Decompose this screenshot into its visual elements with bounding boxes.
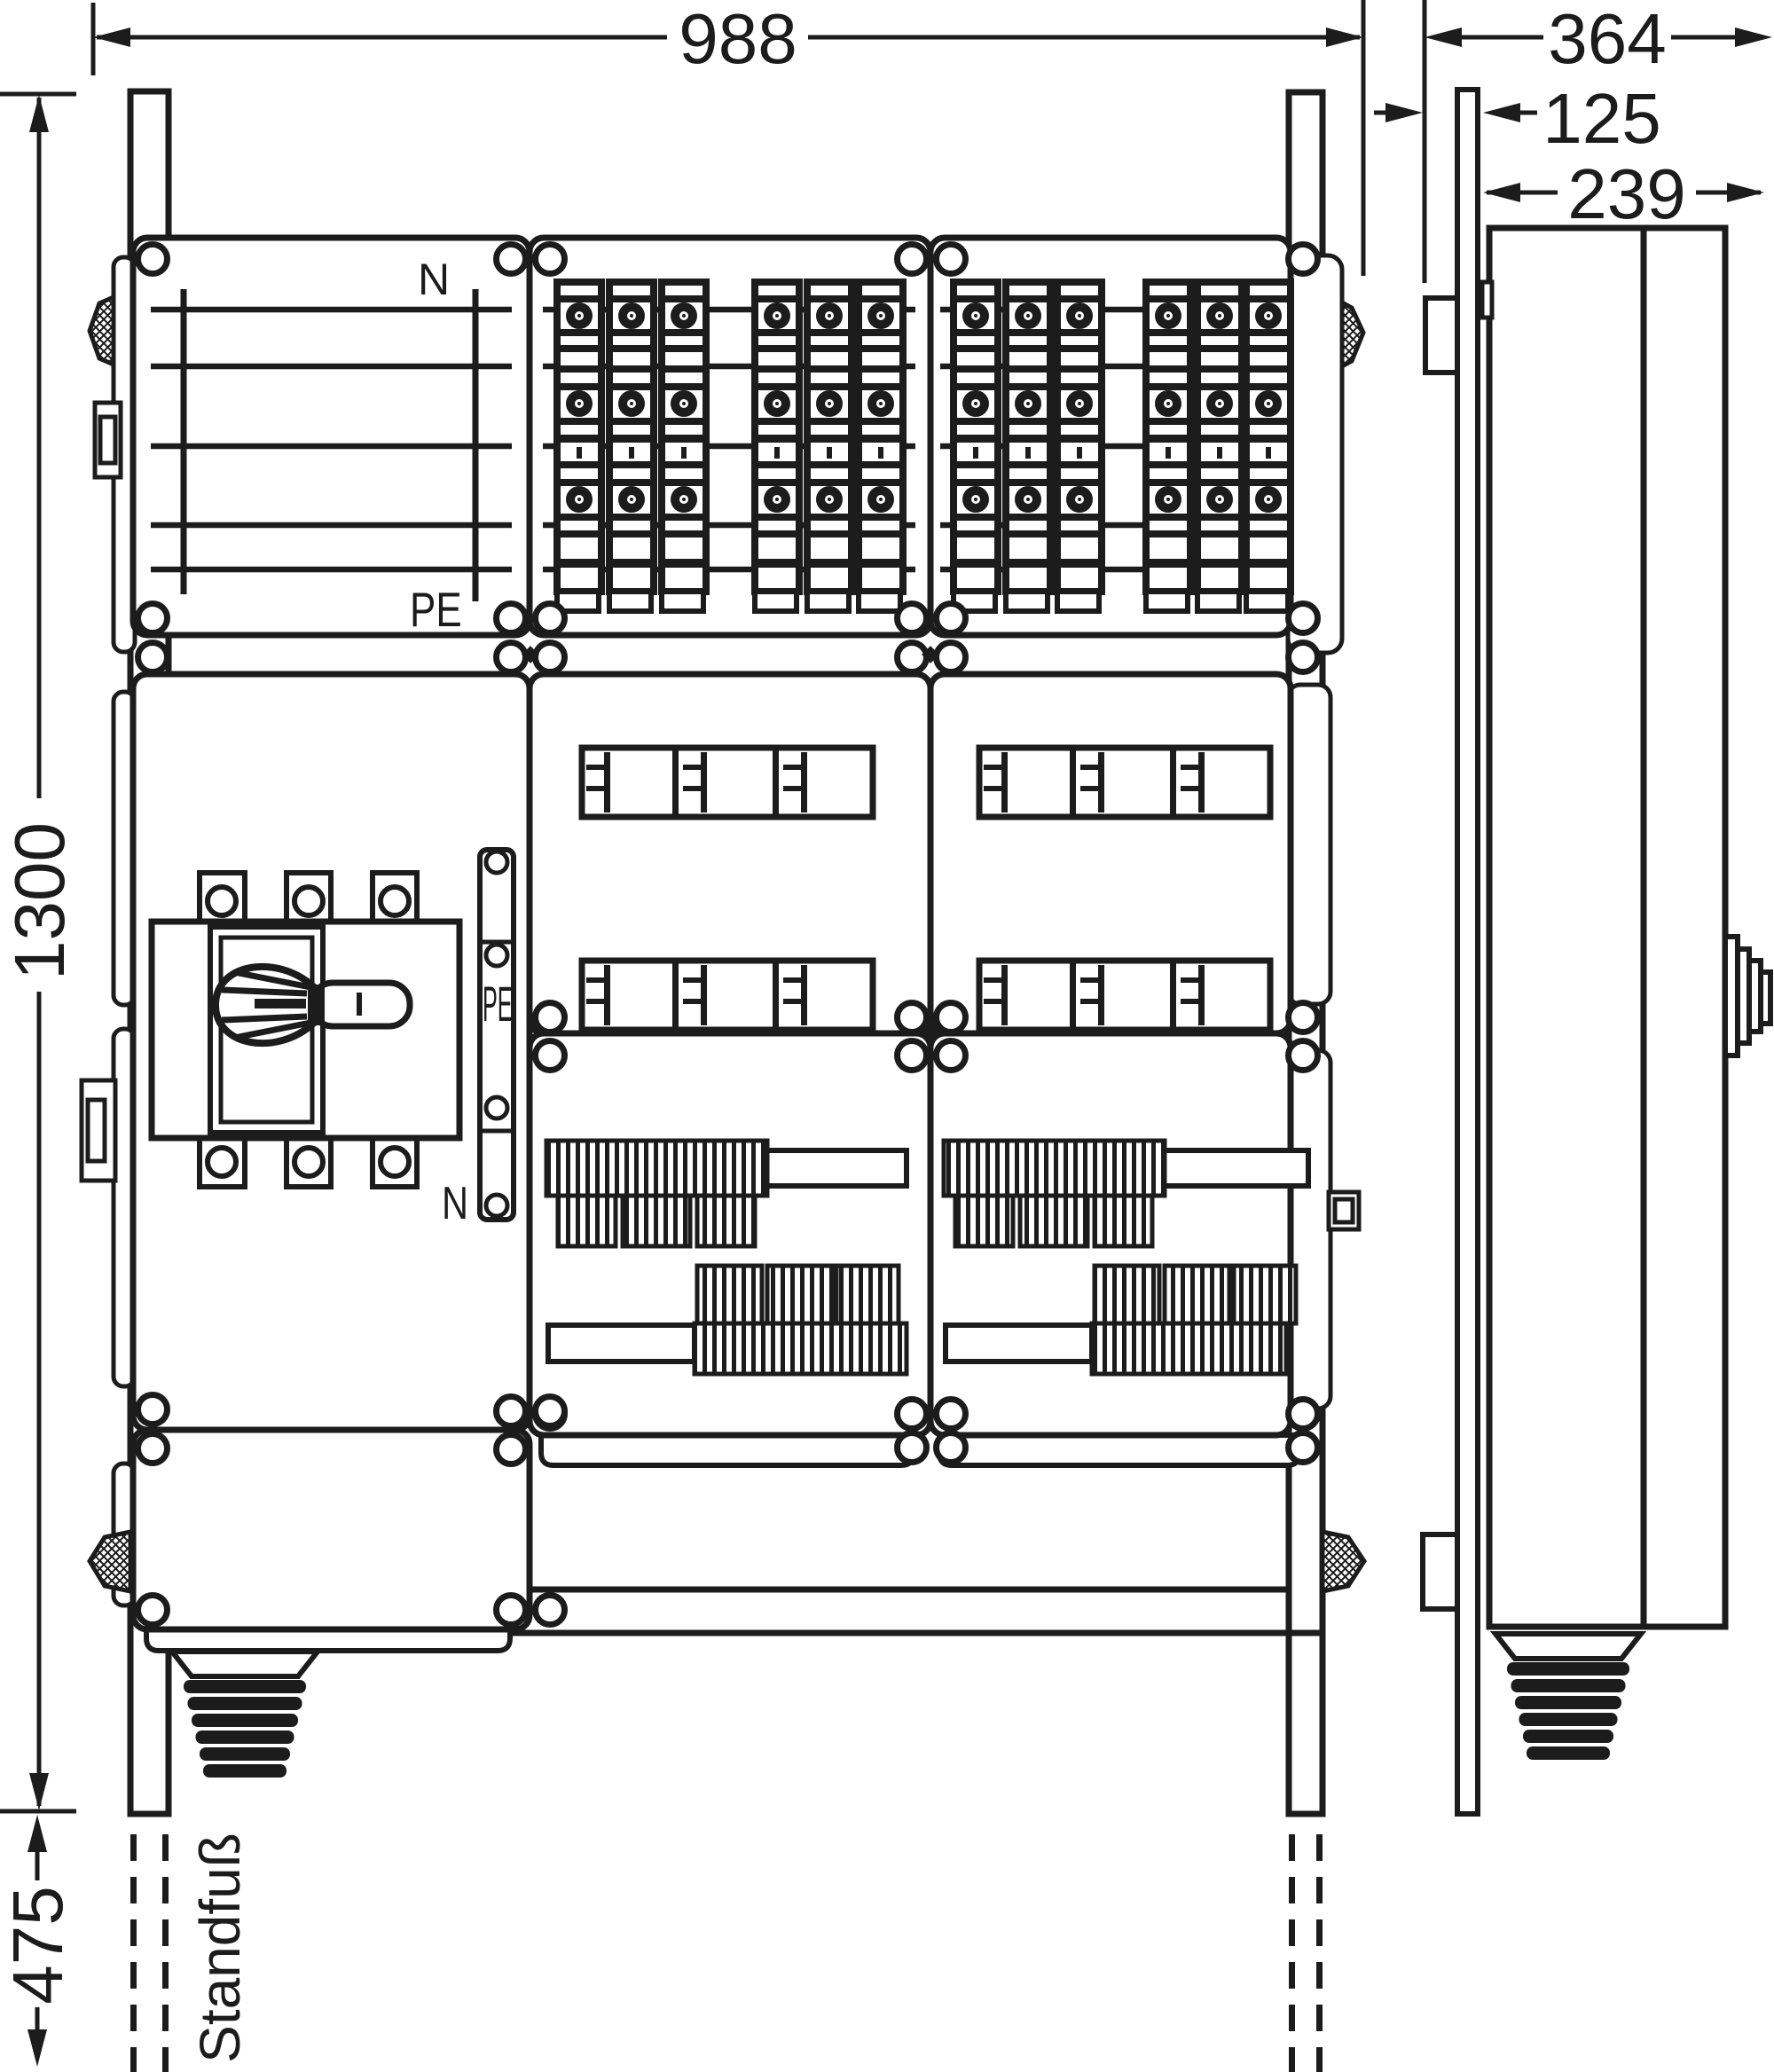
svg-text:PE: PE [483, 977, 513, 1032]
svg-text:PE: PE [410, 582, 462, 637]
svg-text:988: 988 [679, 0, 797, 78]
svg-text:N: N [442, 1177, 468, 1229]
svg-text:1300: 1300 [0, 822, 79, 980]
svg-text:Standfuß: Standfuß [188, 1833, 252, 2063]
svg-text:125: 125 [1542, 79, 1660, 158]
svg-text:364: 364 [1548, 0, 1666, 78]
svg-text:N: N [418, 255, 450, 304]
svg-text:239: 239 [1567, 154, 1685, 233]
svg-text:475: 475 [0, 1886, 77, 2004]
